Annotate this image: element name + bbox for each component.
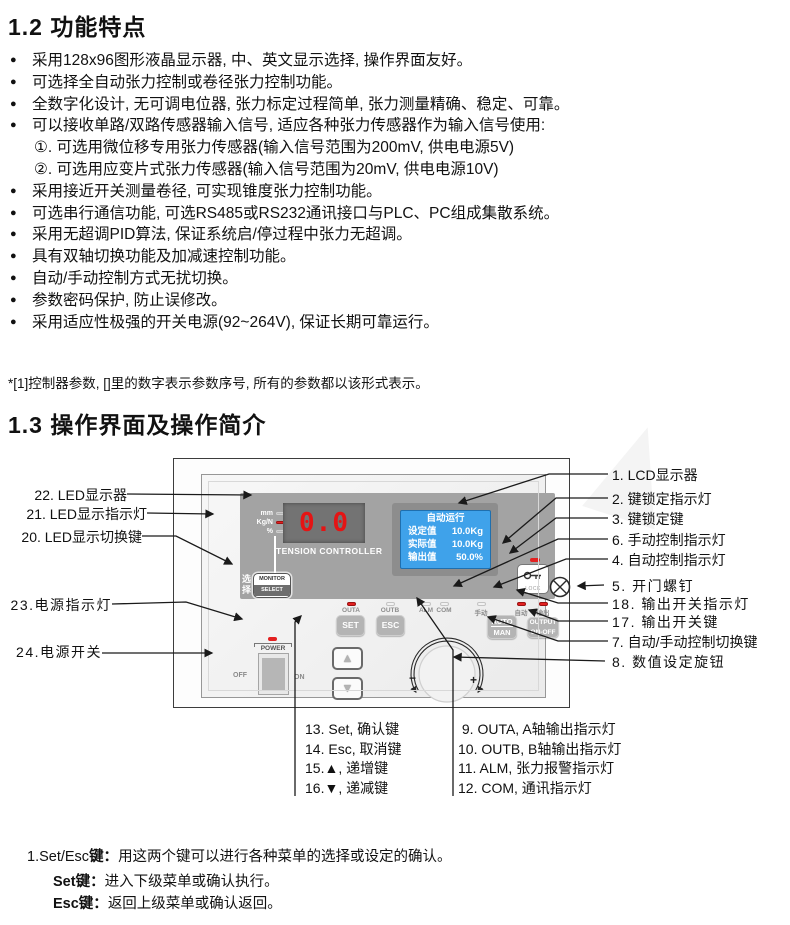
indicator-label: 输出 [527, 607, 559, 617]
lock-label: LOCK [518, 586, 548, 592]
feature-text: 参数密码保护, 防止误修改。 [32, 292, 227, 309]
footer-set-line: Set键：进入下级菜单或确认执行。 [53, 870, 279, 891]
feature-list: ●采用128x96图形液晶显示器, 中、英文显示选择, 操作界面友好。●可选择全… [8, 50, 708, 333]
indicator-label: OUTA [335, 607, 367, 614]
feature-text: 具有双轴切换功能及加减速控制功能。 [32, 248, 296, 265]
feature-item: ●采用适应性极强的开关电源(92~264V), 保证长期可靠运行。 [8, 312, 708, 334]
footer-esc-line: Esc键：返回上级菜单或确认返回。 [53, 892, 282, 913]
callout-door-screw: 5. 开门螺钉 [612, 576, 694, 596]
keylock-button: LOCK [517, 564, 549, 594]
callout-output-indicator: 18. 输出开关指示灯 [612, 594, 750, 614]
led-display: 0.0 [283, 503, 365, 543]
lcd-row: 设定值10.0Kg [408, 525, 483, 538]
feature-item: ①. 可选用微位移专用张力传感器(输入信号范围为200mV, 供电电源5V) [8, 137, 708, 159]
legend-key-item: 15.▲, 递增键 [305, 759, 401, 779]
feature-item: ●采用128x96图形液晶显示器, 中、英文显示选择, 操作界面友好。 [8, 50, 708, 72]
feature-item: ●可以接收单路/双路传感器输入信号, 适应各种张力传感器作为输入信号使用: [8, 115, 708, 137]
unit-indicators: mmKg/N% [248, 509, 284, 536]
footer-set-bold: Set键： [53, 874, 105, 890]
callout-lcd-display: 1. LCD显示器 [612, 465, 698, 485]
feature-text: 采用接近开关测量卷径, 可实现锥度张力控制功能。 [32, 183, 382, 200]
feature-text: 可选择全自动张力控制或卷径张力控制功能。 [32, 74, 342, 91]
unit-row-Kg/N: Kg/N [248, 518, 284, 527]
lcd-row-value: 10.0Kg [452, 538, 483, 551]
feature-item: ●可选择全自动张力控制或卷径张力控制功能。 [8, 72, 708, 94]
callout-output-key: 17. 输出开关键 [612, 612, 719, 632]
param-note: *[1]控制器参数, []里的数字表示参数序号, 所有的参数都以该形式表示。 [8, 372, 429, 392]
feature-item: ●全数字化设计, 无可调电位器, 张力标定过程简单, 张力测量精确、稳定、可靠。 [8, 94, 708, 116]
power-label: POWER [254, 643, 292, 652]
lcd-row: 输出值50.0% [408, 551, 483, 564]
increment-button: ▲ [332, 647, 363, 670]
indicator-led [477, 602, 486, 606]
lcd-row-label: 输出值 [408, 551, 437, 564]
knob-minus-label: − [409, 671, 416, 685]
unit-row-%: % [248, 527, 284, 536]
footer-setesc-text: 用这两个键可以进行各种菜单的选择或设定的确认。 [118, 849, 452, 865]
onoff-label: ON-OFF [531, 629, 556, 636]
indicator-OUTA: OUTA [335, 602, 367, 614]
legend-key-item: 13. Set, 确认键 [305, 720, 401, 740]
indicator-led [386, 602, 395, 606]
section-1-3-heading: 1.3 操作界面及操作简介 [8, 406, 266, 440]
indicator-led [440, 602, 449, 606]
esc-button: ESC [376, 615, 405, 636]
legend-key-item: 14. Esc, 取消键 [305, 740, 401, 760]
callout-value-knob: 8. 数值设定旋钮 [612, 652, 725, 672]
unit-label: mm [261, 510, 273, 517]
bullet-icon: ● [10, 290, 17, 312]
value-knob [403, 637, 503, 715]
decrement-button: ▼ [332, 677, 363, 700]
callout-auto-indicator: 4. 自动控制指示灯 [612, 550, 726, 570]
legend-keys: 13. Set, 确认键14. Esc, 取消键15.▲, 递增键16.▼, 递… [305, 720, 401, 798]
legend-key-item: 16.▼, 递减键 [305, 779, 401, 799]
keylock-led [530, 558, 540, 562]
led-value: 0.0 [299, 508, 349, 538]
feature-item: ●采用接近开关测量卷径, 可实现锥度张力控制功能。 [8, 181, 708, 203]
feature-item: ●自动/手动控制方式无扰切换。 [8, 268, 708, 290]
callout-keylock-indicator: 2. 键锁定指示灯 [612, 489, 712, 509]
manual-page: 1.2 功能特点 ●采用128x96图形液晶显示器, 中、英文显示选择, 操作界… [0, 0, 790, 925]
legend-indicator-item: 11. ALM, 张力报警指示灯 [458, 759, 621, 779]
indicator-OUTB: OUTB [374, 602, 406, 614]
bullet-icon: ● [10, 312, 17, 334]
man-label: MAN [493, 628, 510, 637]
lcd-rows: 设定值10.0Kg实际值10.0Kg输出值50.0% [408, 525, 483, 564]
indicator-led [539, 602, 548, 606]
callout-auto-manual-key: 7. 自动/手动控制切换键 [612, 632, 757, 652]
door-screw-icon [549, 576, 571, 598]
callout-led-switch-key: 20. LED显示切换键 [21, 527, 142, 547]
legend-indicator-item: 9. OUTA, A轴输出指示灯 [458, 720, 621, 740]
knob-plus-label: + [470, 673, 477, 687]
feature-text: 可选串行通信功能, 可选RS485或RS232通讯接口与PLC、PC组成集散系统… [32, 205, 559, 222]
feature-item: ●参数密码保护, 防止误修改。 [8, 290, 708, 312]
monitor-label: MONITOR [254, 574, 290, 585]
feature-text: ①. 可选用微位移专用张力传感器(输入信号范围为200mV, 供电电源5V) [34, 139, 514, 156]
section-1-2-heading: 1.2 功能特点 [8, 8, 146, 42]
footer-setesc-bold: 键： [89, 849, 118, 865]
knob-circle [419, 646, 475, 702]
controller-device: mmKg/N% 0.0 TENSION CONTROLLER 选择 MONITO… [173, 458, 570, 708]
feature-text: ②. 可选用应变片式张力传感器(输入信号范围为20mV, 供电电源10V) [34, 161, 499, 178]
lcd-screen: 自动运行 设定值10.0Kg实际值10.0Kg输出值50.0% [400, 510, 491, 569]
unit-label: Kg/N [257, 519, 273, 526]
front-panel: mmKg/N% 0.0 TENSION CONTROLLER 选择 MONITO… [201, 474, 546, 698]
callout-power-indicator: 23.电源指示灯 [11, 595, 112, 615]
callout-keylock-key: 3. 键锁定键 [612, 509, 684, 529]
feature-text: 采用适应性极强的开关电源(92~264V), 保证长期可靠运行。 [32, 314, 439, 331]
feature-text: 采用无超调PID算法, 保证系统启/停过程中张力无超调。 [32, 226, 412, 243]
select-button-label: SELECT [254, 585, 290, 596]
lcd-row-label: 实际值 [408, 538, 437, 551]
feature-item: ②. 可选用应变片式张力传感器(输入信号范围为20mV, 供电电源10V) [8, 159, 708, 181]
callout-led-indicator: 21. LED显示指示灯 [26, 504, 147, 524]
select-label: 选择 [242, 574, 252, 595]
auto-man-button: AUTO MAN [487, 615, 517, 639]
down-arrow-icon: ▼ [342, 681, 354, 695]
feature-item: ●具有双轴切换功能及加减速控制功能。 [8, 246, 708, 268]
bullet-icon: ● [10, 94, 17, 116]
indicator-label: OUTB [374, 607, 406, 614]
legend-indicator-item: 10. OUTB, B轴输出指示灯 [458, 740, 621, 760]
feature-text: 可以接收单路/双路传感器输入信号, 适应各种张力传感器作为输入信号使用: [32, 117, 545, 134]
power-led [268, 637, 277, 641]
key-icon [523, 570, 543, 581]
indicator-led [517, 602, 526, 606]
indicator-COM: COM [428, 602, 460, 614]
indicator-label: COM [428, 607, 460, 614]
feature-text: 全数字化设计, 无可调电位器, 张力标定过程简单, 张力测量精确、稳定、可靠。 [32, 96, 569, 113]
bullet-icon: ● [10, 203, 17, 225]
footer-esc-text: 返回上级菜单或确认返回。 [108, 896, 282, 912]
legend-indicator-item: 12. COM, 通讯指示灯 [458, 779, 621, 799]
footer-setesc-line: 1.Set/Esc键：用这两个键可以进行各种菜单的选择或设定的确认。 [27, 845, 452, 866]
lcd-row: 实际值10.0Kg [408, 538, 483, 551]
callout-led-display: 22. LED显示器 [34, 485, 127, 505]
legend-indicators: 9. OUTA, A轴输出指示灯10. OUTB, B轴输出指示灯11. ALM… [458, 720, 621, 798]
feature-item: ●采用无超调PID算法, 保证系统启/停过程中张力无超调。 [8, 224, 708, 246]
lcd-row-label: 设定值 [408, 525, 437, 538]
feature-text: 采用128x96图形液晶显示器, 中、英文显示选择, 操作界面友好。 [32, 52, 472, 69]
output-onoff-button: OUTPUT ON-OFF [527, 617, 559, 638]
feature-text: 自动/手动控制方式无扰切换。 [32, 270, 238, 287]
power-on-label: ON [294, 674, 305, 681]
bullet-icon: ● [10, 50, 17, 72]
bullet-icon: ● [10, 224, 17, 246]
bullet-icon: ● [10, 115, 17, 137]
power-rocker [262, 658, 285, 691]
feature-item: ●可选串行通信功能, 可选RS485或RS232通讯接口与PLC、PC组成集散系… [8, 203, 708, 225]
footer-item-number: 1. [27, 849, 39, 865]
callout-power-switch: 24.电源开关 [16, 642, 102, 662]
lcd-bezel: 自动运行 设定值10.0Kg实际值10.0Kg输出值50.0% [392, 503, 498, 576]
auto-label: AUTO [491, 617, 512, 627]
power-switch [258, 653, 289, 695]
panel-leader-line [274, 536, 276, 576]
footer-esc-bold: Esc键： [53, 896, 108, 912]
footer-setesc-key: Set/Esc [39, 849, 89, 865]
indicator-led [347, 602, 356, 606]
set-button: SET [336, 615, 365, 636]
controller-diagram: mmKg/N% 0.0 TENSION CONTROLLER 选择 MONITO… [0, 450, 790, 802]
brand-label: TENSION CONTROLLER [276, 546, 382, 556]
indicator-输出: 输出 [527, 602, 559, 617]
callout-manual-indicator: 6. 手动控制指示灯 [612, 530, 726, 550]
unit-label: % [267, 528, 273, 535]
lcd-row-value: 10.0Kg [452, 525, 483, 538]
bullet-icon: ● [10, 246, 17, 268]
output-label: OUTPUT [530, 619, 557, 626]
bullet-icon: ● [10, 268, 17, 290]
monitor-select-button: MONITOR SELECT [253, 573, 291, 598]
bullet-icon: ● [10, 72, 17, 94]
display-panel: mmKg/N% 0.0 TENSION CONTROLLER 选择 MONITO… [240, 493, 555, 599]
lcd-row-value: 50.0% [456, 551, 483, 564]
power-off-label: OFF [233, 672, 247, 679]
unit-row-mm: mm [248, 509, 284, 518]
lcd-title: 自动运行 [408, 513, 483, 525]
bullet-icon: ● [10, 181, 17, 203]
footer-set-text: 进入下级菜单或确认执行。 [105, 874, 279, 890]
up-arrow-icon: ▲ [342, 651, 354, 665]
